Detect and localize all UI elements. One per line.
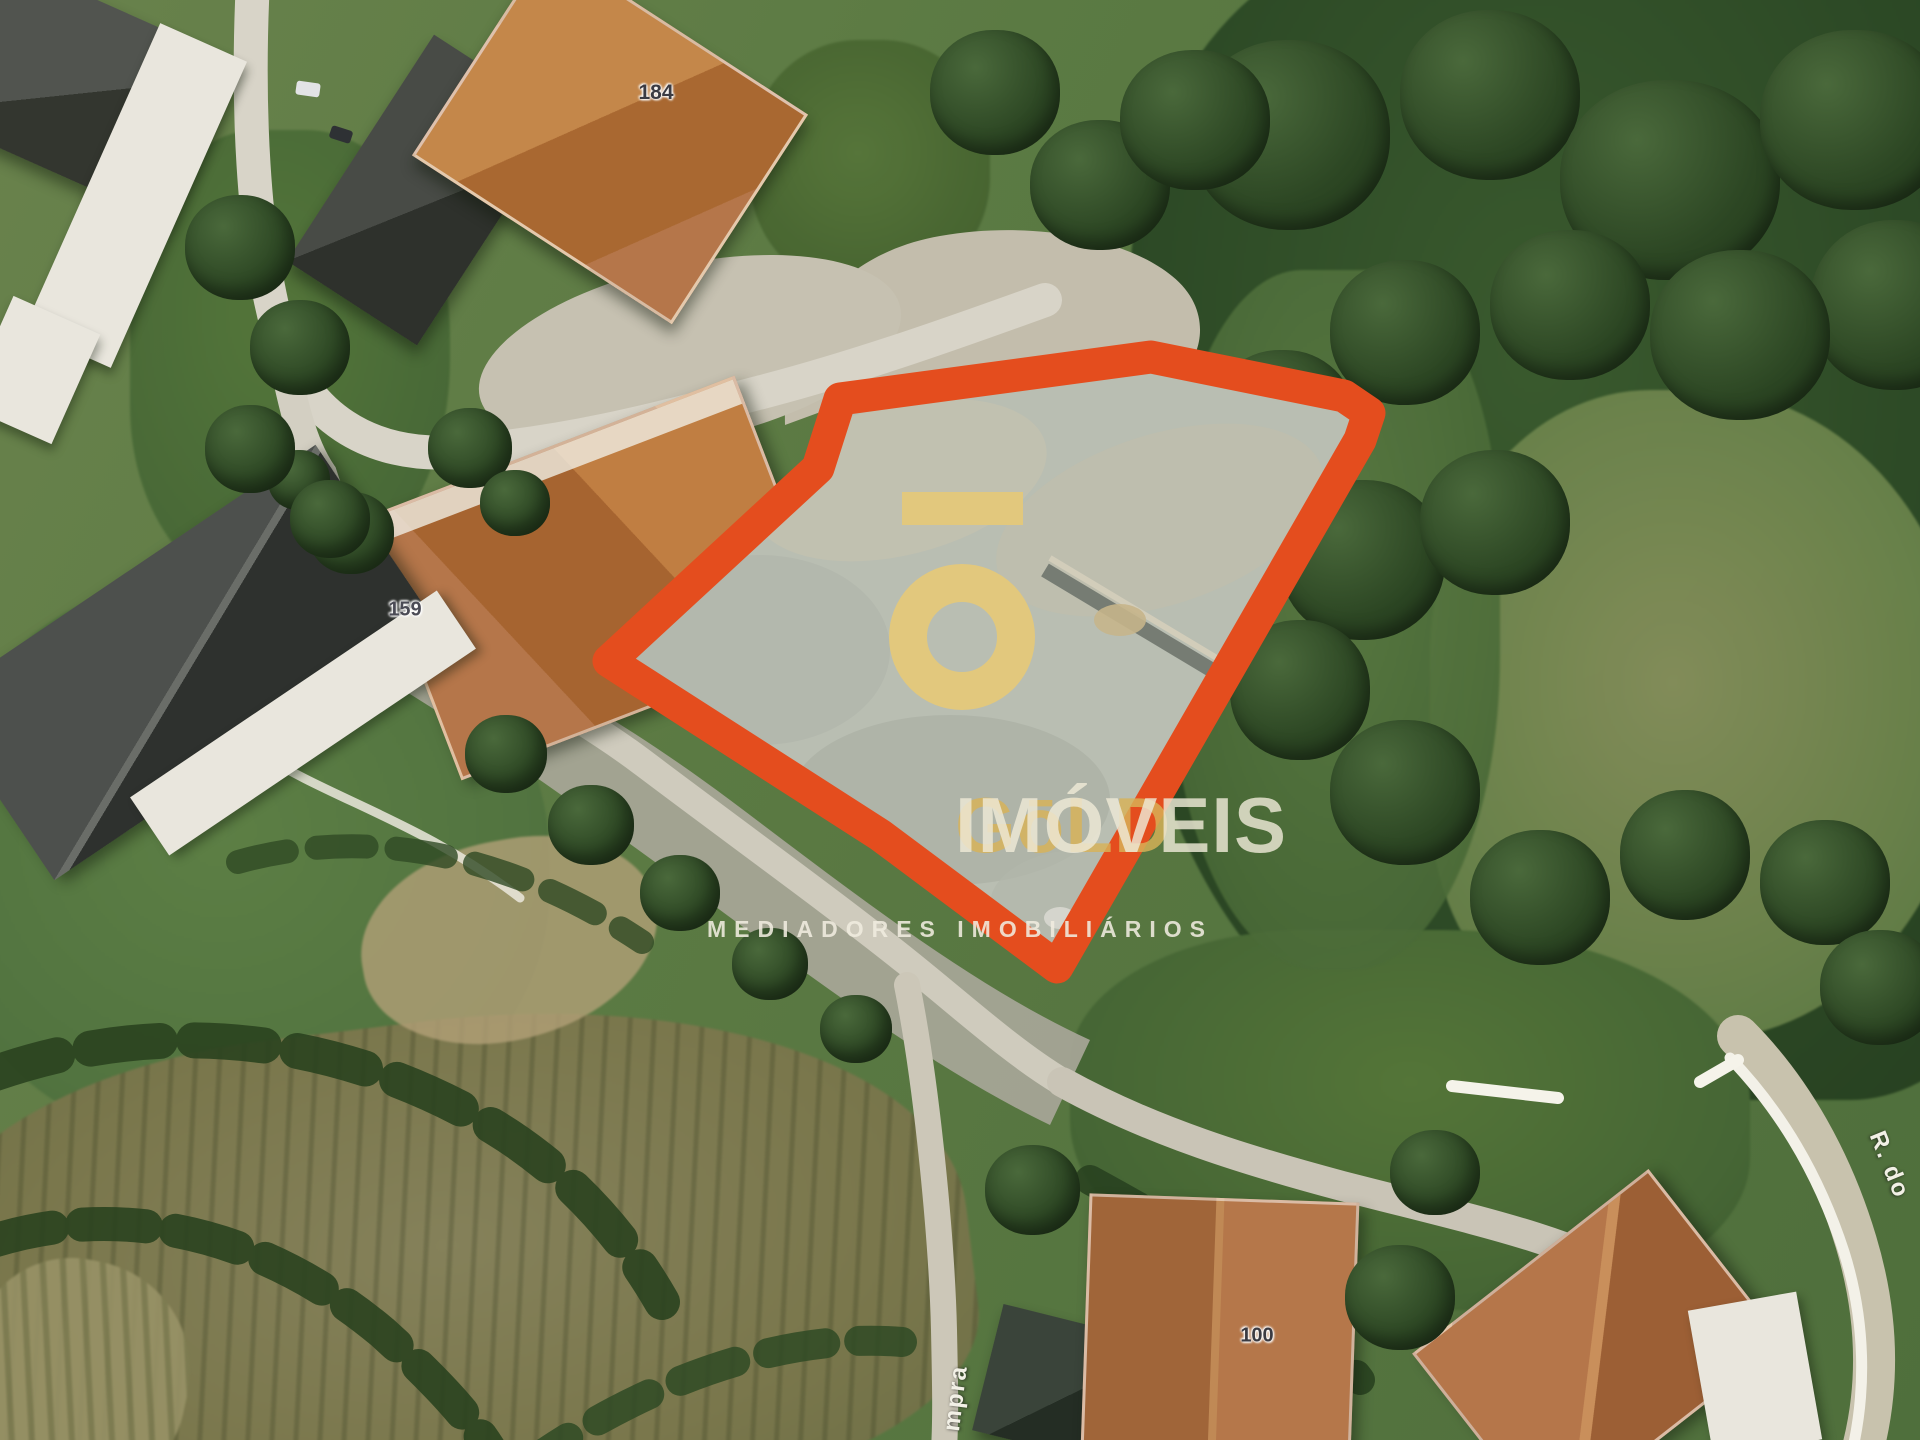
brand-logo-macron-bar-icon	[902, 492, 1023, 525]
satellite-photo: GōLDIMÓVEIS MEDIADORES IMOBILIÁRIOS 184 …	[0, 0, 1920, 1440]
house-number-label: 100	[1240, 1325, 1273, 1348]
brand-wordmark-cream: IMÓVEIS	[955, 786, 1287, 864]
house-number-label: 184	[638, 81, 673, 105]
house-number-label: 159	[388, 599, 421, 622]
brand-subtitle: MEDIADORES IMOBILIÁRIOS	[707, 916, 1213, 943]
plot-boundary-overlay	[0, 0, 1920, 1440]
brand-logo-ring-icon	[889, 564, 1035, 710]
